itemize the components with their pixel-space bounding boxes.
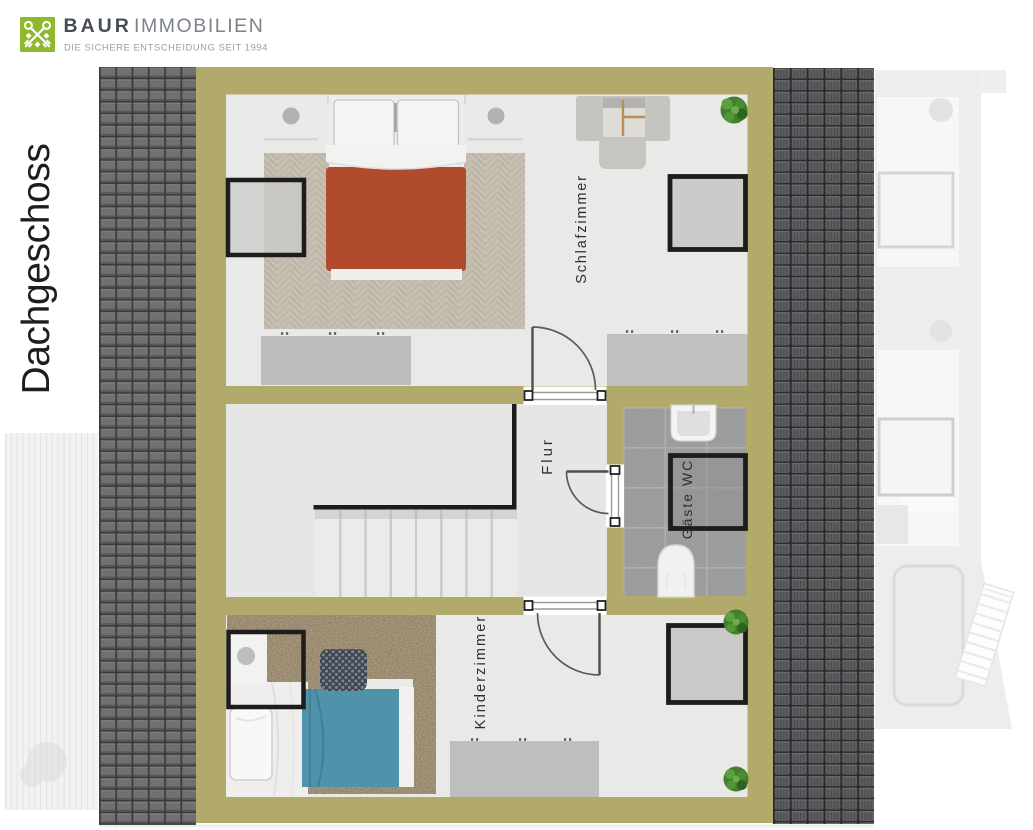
svg-text:Schlafzimmer: Schlafzimmer (574, 174, 590, 283)
svg-text:Dachgeschoss: Dachgeschoss (15, 143, 58, 394)
svg-text:BAUR: BAUR (64, 15, 132, 37)
svg-text:Kinderzimmer: Kinderzimmer (473, 615, 489, 730)
svg-text:IMMOBILIEN: IMMOBILIEN (134, 15, 264, 37)
svg-text:DIE SICHERE ENTSCHEIDUNG SEIT: DIE SICHERE ENTSCHEIDUNG SEIT 1994 (64, 42, 268, 53)
svg-text:Gäste WC: Gäste WC (679, 459, 695, 540)
svg-text:Flur: Flur (539, 437, 556, 475)
